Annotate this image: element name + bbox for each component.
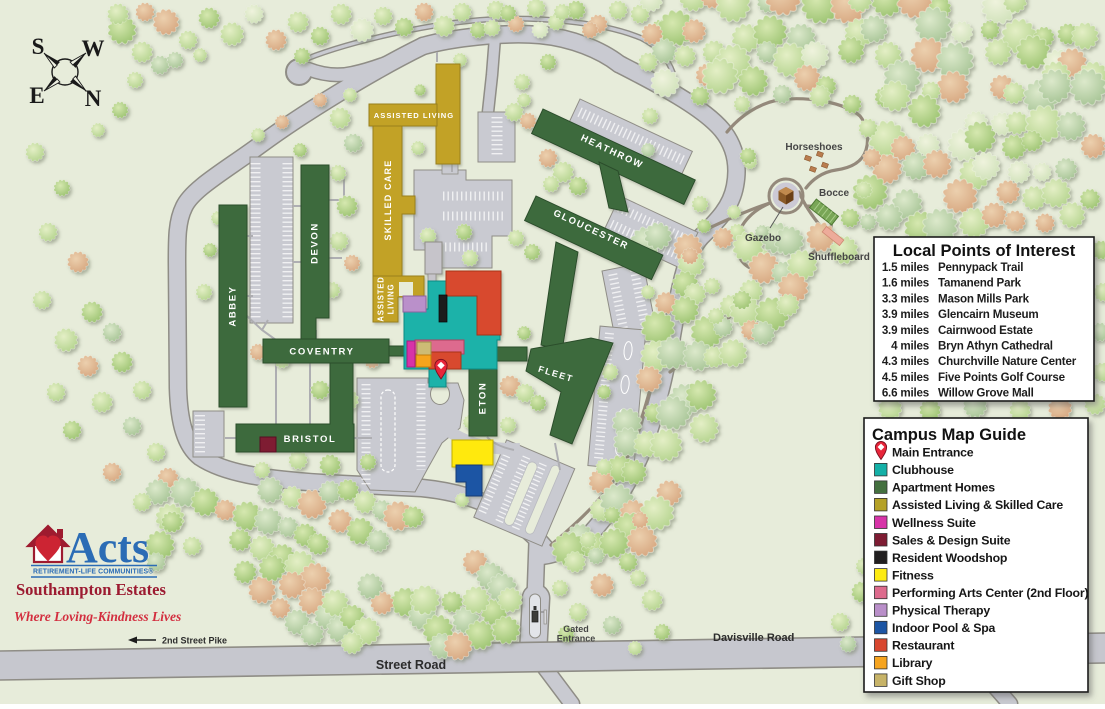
svg-text:E: E bbox=[29, 83, 44, 108]
svg-text:S: S bbox=[32, 34, 45, 59]
svg-text:Bryn Athyn Cathedral: Bryn Athyn Cathedral bbox=[938, 340, 1053, 353]
svg-text:Street Road: Street Road bbox=[376, 658, 446, 672]
svg-text:Restaurant: Restaurant bbox=[892, 639, 954, 653]
svg-text:N: N bbox=[85, 86, 102, 111]
svg-text:3.9 miles: 3.9 miles bbox=[882, 324, 929, 337]
svg-text:Gift Shop: Gift Shop bbox=[892, 674, 946, 688]
svg-text:Horseshoes: Horseshoes bbox=[785, 142, 843, 153]
svg-text:Local Points of Interest: Local Points of Interest bbox=[893, 242, 1076, 260]
svg-text:6.6 miles: 6.6 miles bbox=[882, 387, 929, 400]
svg-text:Campus Map Guide: Campus Map Guide bbox=[872, 426, 1026, 444]
svg-text:3.9 miles: 3.9 miles bbox=[882, 308, 929, 321]
svg-text:DEVON: DEVON bbox=[310, 222, 321, 264]
svg-text:Performing Arts Center (2nd Fl: Performing Arts Center (2nd Floor) bbox=[892, 586, 1088, 600]
svg-text:Sales & Design Suite: Sales & Design Suite bbox=[892, 533, 1011, 547]
svg-text:ABBEY: ABBEY bbox=[228, 285, 239, 326]
svg-text:Glencairn Museum: Glencairn Museum bbox=[938, 308, 1039, 321]
svg-text:1.6 miles: 1.6 miles bbox=[882, 277, 929, 290]
svg-text:Indoor Pool & Spa: Indoor Pool & Spa bbox=[892, 621, 996, 635]
svg-text:RETIREMENT-LIFE COMMUNITIES®: RETIREMENT-LIFE COMMUNITIES® bbox=[33, 568, 153, 576]
svg-text:Gazebo: Gazebo bbox=[745, 233, 781, 244]
svg-text:Shuffleboard: Shuffleboard bbox=[808, 252, 870, 263]
svg-text:Tamanend Park: Tamanend Park bbox=[938, 277, 1022, 290]
svg-text:Main Entrance: Main Entrance bbox=[892, 446, 974, 460]
svg-text:LIVING: LIVING bbox=[387, 284, 396, 315]
svg-text:1.5 miles: 1.5 miles bbox=[882, 261, 929, 274]
svg-text:Resident Woodshop: Resident Woodshop bbox=[892, 551, 1007, 565]
svg-text:Gated: Gated bbox=[563, 624, 589, 634]
svg-text:4.3 miles: 4.3 miles bbox=[882, 355, 929, 368]
svg-text:Wellness Suite: Wellness Suite bbox=[892, 516, 976, 530]
svg-text:Cairnwood Estate: Cairnwood Estate bbox=[938, 324, 1033, 337]
svg-text:Pennypack Trail: Pennypack Trail bbox=[938, 261, 1023, 274]
svg-text:Clubhouse: Clubhouse bbox=[892, 463, 954, 477]
svg-text:SKILLED CARE: SKILLED CARE bbox=[383, 160, 393, 241]
svg-text:Physical Therapy: Physical Therapy bbox=[892, 604, 990, 618]
svg-text:Apartment Homes: Apartment Homes bbox=[892, 481, 995, 495]
svg-text:Davisville Road: Davisville Road bbox=[713, 632, 794, 644]
svg-text:3.3 miles: 3.3 miles bbox=[882, 292, 929, 305]
svg-text:Acts: Acts bbox=[66, 523, 149, 572]
svg-text:Willow Grove Mall: Willow Grove Mall bbox=[938, 387, 1034, 400]
svg-text:ASSISTED: ASSISTED bbox=[377, 276, 386, 321]
svg-text:Assisted Living & Skilled Care: Assisted Living & Skilled Care bbox=[892, 498, 1063, 512]
svg-text:Library: Library bbox=[892, 656, 933, 670]
svg-text:Churchville Nature Center: Churchville Nature Center bbox=[938, 355, 1077, 368]
svg-text:4 miles: 4 miles bbox=[891, 340, 929, 353]
svg-text:Southampton Estates: Southampton Estates bbox=[16, 580, 166, 599]
svg-text:Five Points Golf Course: Five Points Golf Course bbox=[938, 371, 1066, 384]
svg-text:Fitness: Fitness bbox=[892, 569, 934, 583]
svg-text:Entrance: Entrance bbox=[557, 634, 596, 644]
svg-text:2nd Street Pike: 2nd Street Pike bbox=[162, 636, 227, 646]
svg-text:COVENTRY: COVENTRY bbox=[289, 347, 354, 358]
svg-text:Bocce: Bocce bbox=[819, 188, 849, 199]
svg-text:Where Loving-Kindness Lives: Where Loving-Kindness Lives bbox=[14, 609, 181, 624]
svg-text:4.5 miles: 4.5 miles bbox=[882, 371, 929, 384]
svg-text:BRISTOL: BRISTOL bbox=[284, 434, 337, 445]
svg-text:ETON: ETON bbox=[478, 382, 489, 415]
svg-text:Mason Mills Park: Mason Mills Park bbox=[938, 292, 1030, 305]
svg-text:ASSISTED LIVING: ASSISTED LIVING bbox=[374, 111, 454, 120]
svg-text:W: W bbox=[82, 36, 105, 61]
